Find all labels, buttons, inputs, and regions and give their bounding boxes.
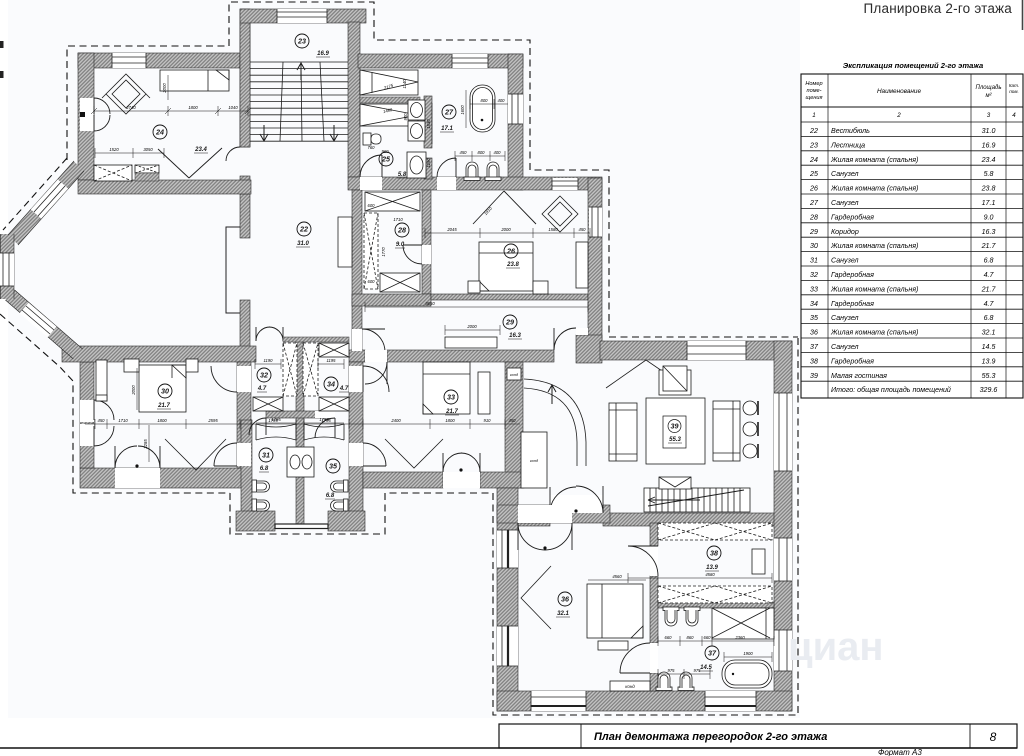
svg-text:1800: 1800 xyxy=(188,105,198,110)
svg-text:17.1: 17.1 xyxy=(982,199,996,207)
svg-text:400: 400 xyxy=(494,150,502,155)
svg-text:30: 30 xyxy=(161,387,169,396)
svg-text:32: 32 xyxy=(810,271,818,279)
svg-text:975: 975 xyxy=(668,668,676,673)
svg-text:900: 900 xyxy=(403,113,408,121)
svg-text:4.7: 4.7 xyxy=(984,300,995,308)
svg-text:конд: конд xyxy=(510,373,518,377)
svg-text:1530: 1530 xyxy=(426,119,431,129)
svg-text:1520: 1520 xyxy=(109,147,119,152)
svg-text:31.0: 31.0 xyxy=(982,127,996,135)
svg-text:Наименование: Наименование xyxy=(877,88,922,95)
svg-text:26: 26 xyxy=(506,247,516,256)
svg-text:1900: 1900 xyxy=(743,651,753,656)
svg-text:37: 37 xyxy=(810,343,819,351)
svg-text:34: 34 xyxy=(327,380,335,389)
svg-text:28: 28 xyxy=(809,213,818,221)
svg-text:16.9: 16.9 xyxy=(982,141,996,149)
svg-text:6.8: 6.8 xyxy=(984,257,994,265)
svg-text:31.0: 31.0 xyxy=(297,241,309,247)
svg-text:Лестница: Лестница xyxy=(830,141,865,149)
svg-text:Экспликация помещений 2-го эта: Экспликация помещений 2-го этажа xyxy=(843,61,983,70)
svg-text:800: 800 xyxy=(481,98,489,103)
svg-text:4580: 4580 xyxy=(705,572,715,577)
svg-text:поме-: поме- xyxy=(807,88,822,94)
svg-text:4.7: 4.7 xyxy=(339,386,349,392)
svg-text:21.7: 21.7 xyxy=(157,403,170,409)
svg-text:2000: 2000 xyxy=(162,83,167,94)
svg-text:Санузел: Санузел xyxy=(831,257,859,265)
svg-text:Коридор: Коридор xyxy=(831,228,859,236)
svg-text:16.9: 16.9 xyxy=(317,51,329,57)
svg-text:760: 760 xyxy=(368,145,376,150)
svg-text:циан: циан xyxy=(788,625,884,669)
svg-text:27: 27 xyxy=(444,108,454,117)
svg-text:450: 450 xyxy=(579,227,587,232)
svg-text:36: 36 xyxy=(561,595,570,604)
svg-text:450: 450 xyxy=(460,150,468,155)
svg-text:33: 33 xyxy=(810,285,818,293)
svg-text:8650: 8650 xyxy=(425,301,435,306)
svg-text:пом.: пом. xyxy=(1009,89,1019,94)
svg-text:3: 3 xyxy=(987,112,991,119)
svg-text:2: 2 xyxy=(896,112,901,119)
svg-text:24: 24 xyxy=(155,128,164,137)
svg-text:Планировка 2-го этажа: Планировка 2-го этажа xyxy=(864,1,1013,16)
svg-text:33: 33 xyxy=(447,393,455,402)
svg-text:22: 22 xyxy=(299,225,308,234)
svg-text:9.0: 9.0 xyxy=(396,242,405,248)
svg-text:24: 24 xyxy=(809,156,818,164)
svg-text:26: 26 xyxy=(809,185,818,193)
svg-text:конд: конд xyxy=(530,459,538,463)
svg-text:910: 910 xyxy=(484,418,492,423)
svg-text:конд: конд xyxy=(625,684,635,689)
svg-text:Жилая комната (спальня): Жилая комната (спальня) xyxy=(830,285,918,293)
svg-text:Жилая комната (спальня): Жилая комната (спальня) xyxy=(830,185,918,193)
svg-text:4: 4 xyxy=(1012,112,1016,119)
svg-text:14.5: 14.5 xyxy=(982,343,996,351)
svg-text:30: 30 xyxy=(810,242,818,250)
svg-text:1795: 1795 xyxy=(319,417,329,422)
svg-text:13.9: 13.9 xyxy=(706,565,718,571)
svg-text:14.5: 14.5 xyxy=(700,665,712,671)
svg-text:Гардеробная: Гардеробная xyxy=(831,300,874,308)
svg-text:6.8: 6.8 xyxy=(984,314,994,322)
svg-text:щения: щения xyxy=(805,95,822,101)
svg-text:5.8: 5.8 xyxy=(398,172,407,178)
svg-text:м²: м² xyxy=(985,93,992,99)
svg-text:31: 31 xyxy=(262,451,270,460)
svg-text:22: 22 xyxy=(809,127,818,135)
svg-text:1580: 1580 xyxy=(548,227,558,232)
svg-text:1290: 1290 xyxy=(426,158,431,168)
svg-text:29: 29 xyxy=(505,318,514,327)
svg-text:31: 31 xyxy=(810,257,818,265)
svg-text:1600: 1600 xyxy=(460,105,465,115)
svg-text:600: 600 xyxy=(368,279,376,284)
svg-text:38: 38 xyxy=(710,549,718,558)
svg-text:4.7: 4.7 xyxy=(257,386,267,392)
svg-text:55.3: 55.3 xyxy=(982,372,996,380)
svg-text:329.6: 329.6 xyxy=(980,386,998,394)
svg-text:1710: 1710 xyxy=(393,217,403,222)
svg-text:400: 400 xyxy=(498,98,506,103)
svg-text:1710: 1710 xyxy=(118,418,128,423)
svg-text:Площадь: Площадь xyxy=(975,85,1001,91)
svg-text:16.3: 16.3 xyxy=(982,228,996,236)
svg-text:Гардеробная: Гардеробная xyxy=(831,357,874,365)
svg-text:2740: 2740 xyxy=(125,105,136,110)
svg-text:16.3: 16.3 xyxy=(509,333,521,339)
svg-text:37: 37 xyxy=(708,649,717,658)
svg-text:39: 39 xyxy=(810,372,818,380)
svg-text:27: 27 xyxy=(809,199,819,207)
svg-text:36: 36 xyxy=(810,329,818,337)
svg-text:13.9: 13.9 xyxy=(982,357,996,365)
svg-text:2400: 2400 xyxy=(390,418,401,423)
svg-text:1800: 1800 xyxy=(445,418,455,423)
svg-text:8: 8 xyxy=(990,730,997,744)
svg-text:Итого: общая площадь помещений: Итого: общая площадь помещений xyxy=(831,386,951,394)
svg-text:39: 39 xyxy=(671,422,679,431)
svg-text:Жилая комната (спальня): Жилая комната (спальня) xyxy=(830,242,918,250)
svg-text:6.8: 6.8 xyxy=(260,466,269,472)
svg-text:23.4: 23.4 xyxy=(194,147,207,153)
svg-text:2360: 2360 xyxy=(734,635,745,640)
svg-text:2285: 2285 xyxy=(143,439,148,450)
svg-text:9.0: 9.0 xyxy=(984,213,994,221)
svg-text:План демонтажа перегородок 2-г: План демонтажа перегородок 2-го этажа xyxy=(594,731,827,743)
svg-text:23: 23 xyxy=(809,141,818,149)
svg-text:3050: 3050 xyxy=(143,147,153,152)
svg-text:1140: 1140 xyxy=(402,79,407,89)
svg-text:55.3: 55.3 xyxy=(669,437,681,443)
svg-text:6.8: 6.8 xyxy=(326,493,335,499)
svg-text:4.7: 4.7 xyxy=(984,271,995,279)
svg-text:1800: 1800 xyxy=(157,418,167,423)
svg-text:21.7: 21.7 xyxy=(981,242,997,250)
svg-text:450: 450 xyxy=(98,418,106,423)
svg-text:Жилая комната (спальня): Жилая комната (спальня) xyxy=(830,156,918,164)
svg-text:1040: 1040 xyxy=(228,105,238,110)
svg-text:Формат А3: Формат А3 xyxy=(878,748,922,756)
svg-text:17.1: 17.1 xyxy=(441,126,453,132)
svg-text:800: 800 xyxy=(478,150,486,155)
svg-text:2000: 2000 xyxy=(131,385,136,396)
svg-text:Кат.: Кат. xyxy=(1009,83,1019,88)
svg-text:600: 600 xyxy=(368,203,376,208)
svg-text:1190: 1190 xyxy=(263,358,273,363)
svg-text:34: 34 xyxy=(810,300,818,308)
svg-text:21.7: 21.7 xyxy=(445,409,458,415)
svg-text:450: 450 xyxy=(509,418,517,423)
svg-text:960: 960 xyxy=(382,149,390,154)
svg-text:1770: 1770 xyxy=(381,247,386,257)
svg-text:23: 23 xyxy=(297,37,306,46)
svg-text:35: 35 xyxy=(329,462,338,471)
svg-text:32.1: 32.1 xyxy=(982,329,996,337)
svg-text:5.8: 5.8 xyxy=(984,170,994,178)
svg-text:Номер: Номер xyxy=(805,81,822,87)
svg-text:Санузел: Санузел xyxy=(831,343,859,351)
svg-text:32: 32 xyxy=(260,371,268,380)
svg-text:Гардеробная: Гардеробная xyxy=(831,213,874,221)
svg-text:35: 35 xyxy=(810,314,818,322)
svg-text:23.8: 23.8 xyxy=(981,185,996,193)
svg-text:25: 25 xyxy=(381,155,391,164)
svg-text:2595: 2595 xyxy=(207,418,218,423)
svg-text:1: 1 xyxy=(812,112,815,119)
svg-text:2045: 2045 xyxy=(446,227,457,232)
svg-text:29: 29 xyxy=(809,228,818,236)
svg-text:2000: 2000 xyxy=(466,324,477,329)
svg-text:4560: 4560 xyxy=(612,574,622,579)
svg-text:1795: 1795 xyxy=(271,417,281,422)
svg-text:Жилая комната (спальня): Жилая комната (спальня) xyxy=(830,329,918,337)
svg-text:975: 975 xyxy=(694,668,702,673)
svg-text:Санузел: Санузел xyxy=(831,199,859,207)
svg-text:21.7: 21.7 xyxy=(981,285,997,293)
svg-text:660: 660 xyxy=(704,635,712,640)
svg-text:38: 38 xyxy=(810,357,818,365)
svg-text:25: 25 xyxy=(809,170,818,178)
svg-text:660: 660 xyxy=(665,635,673,640)
svg-text:23.8: 23.8 xyxy=(506,262,519,268)
svg-text:Малая гостиная: Малая гостиная xyxy=(831,372,887,380)
svg-text:28: 28 xyxy=(397,226,406,235)
svg-text:Вестибюль: Вестибюль xyxy=(831,127,870,135)
svg-text:32.1: 32.1 xyxy=(557,611,569,617)
svg-text:Гардеробная: Гардеробная xyxy=(831,271,874,279)
svg-text:Санузел: Санузел xyxy=(831,314,859,322)
svg-text:2000: 2000 xyxy=(500,227,511,232)
svg-text:23.4: 23.4 xyxy=(981,156,996,164)
svg-text:1195: 1195 xyxy=(326,358,336,363)
svg-text:860: 860 xyxy=(687,635,695,640)
svg-text:Санузел: Санузел xyxy=(831,170,859,178)
